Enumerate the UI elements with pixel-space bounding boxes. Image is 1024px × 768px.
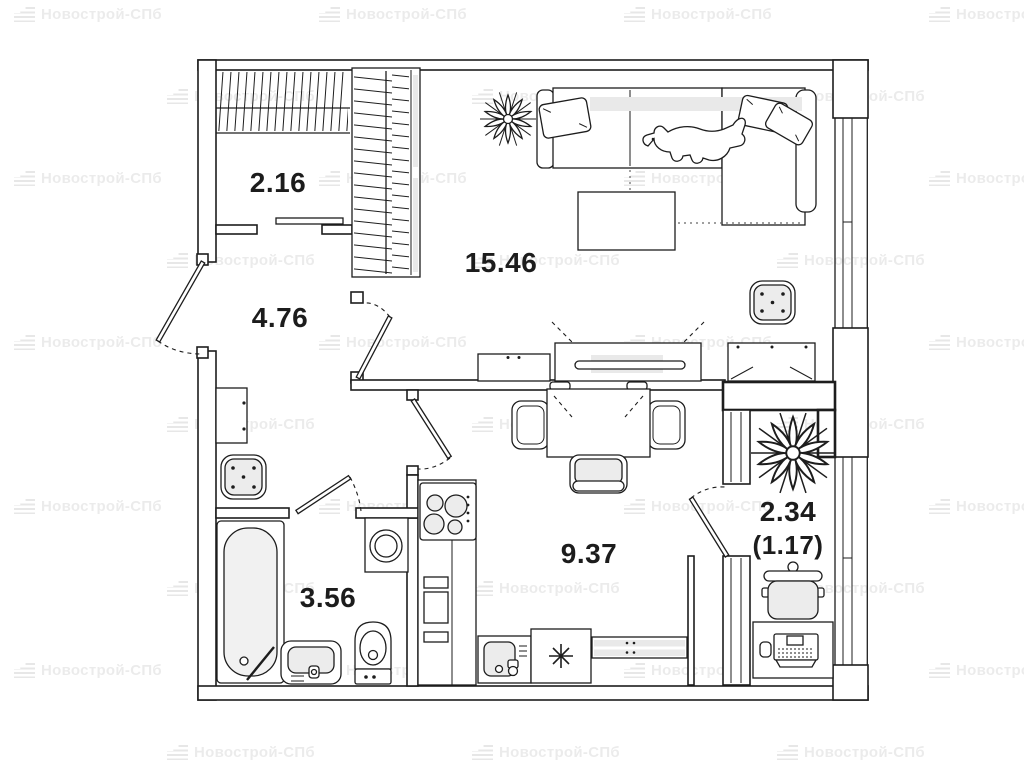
door-living-room (356, 303, 392, 379)
mug-icon (760, 642, 771, 657)
door-balcony (689, 487, 728, 557)
kitchen-cabinet (592, 637, 687, 658)
hallway-cabinet (216, 388, 247, 443)
sideboard (478, 354, 550, 381)
pouf-living-room (750, 281, 795, 324)
room-area-hallway: 4.76 (252, 302, 309, 333)
kitchen-column (418, 480, 476, 685)
hanger-rail-closet (216, 72, 350, 133)
coffee-table (578, 192, 675, 250)
wall-balcony-thick (723, 382, 835, 410)
pillow (538, 97, 591, 139)
washbasin (281, 641, 341, 684)
chair (512, 401, 549, 449)
dining-table (547, 389, 650, 457)
floorplan-page: Новострой-СПбНовострой-СПбНовострой-СПбН… (0, 0, 1024, 768)
entrance-door (156, 261, 205, 354)
door-kitchen (411, 399, 451, 469)
toilet (355, 622, 391, 684)
storage-bench (728, 343, 815, 381)
floorplan-drawing: 2.16 4.76 15.46 3.56 9.37 2.34 (1.17) (0, 0, 1024, 768)
wall-left-upper (198, 60, 216, 262)
wall-top (198, 60, 868, 70)
chair (648, 401, 685, 449)
wall-bathroom-top-left (216, 508, 289, 518)
tv-icon (575, 361, 685, 369)
kitchen-side-panel (688, 556, 694, 685)
wall-right-block-mid (833, 328, 868, 457)
desk-with-laptop (753, 622, 833, 678)
plant-icon (480, 92, 536, 145)
bathtub (217, 521, 284, 683)
cooktop (420, 483, 476, 540)
partition-balcony (723, 410, 750, 685)
wall-bottom (198, 686, 868, 700)
wardrobe (352, 68, 420, 277)
room-area-balcony: 2.34 (760, 496, 817, 527)
room-area-kitchen: 9.37 (561, 538, 618, 569)
room-area-closet: 2.16 (250, 167, 307, 198)
laptop-icon (774, 634, 818, 667)
window-balcony (835, 457, 852, 665)
wall-left-lower (198, 351, 216, 700)
wall-right-block-bottom (833, 665, 868, 700)
wall-bathroom-top-right (356, 508, 418, 518)
room-area-bathroom: 3.56 (300, 582, 357, 613)
room-area-living-room: 15.46 (465, 247, 538, 278)
pouf-hallway (221, 455, 266, 499)
flower-pot (762, 562, 824, 619)
window-living-room (835, 118, 852, 328)
kitchen-sink (478, 636, 531, 683)
washing-machine (365, 518, 408, 572)
sliding-door-closet (276, 218, 343, 224)
wall-right-block-top (833, 60, 868, 118)
door-bathroom (296, 476, 361, 514)
room-area-balcony-reduced: (1.17) (753, 530, 824, 560)
fridge (531, 629, 591, 683)
tv-unit (552, 322, 704, 381)
chair (570, 455, 627, 493)
dining-table-set (512, 382, 685, 493)
